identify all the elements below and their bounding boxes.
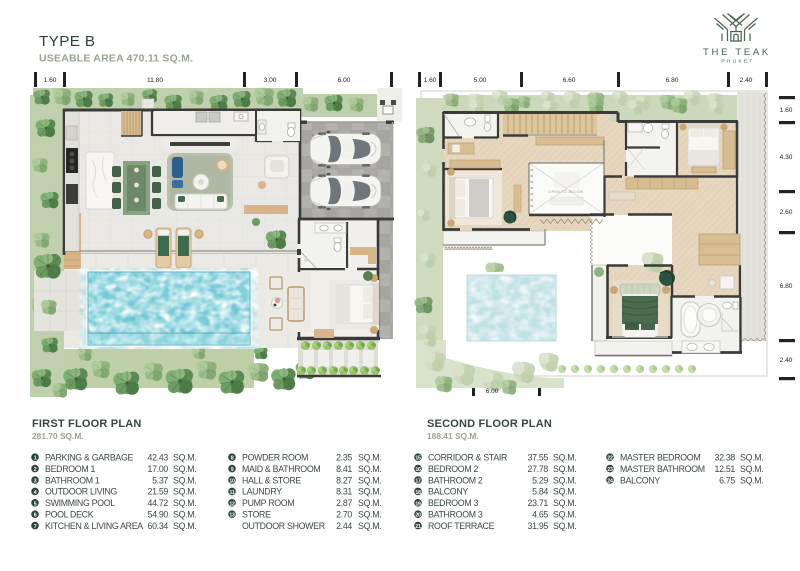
svg-text:SQ.M.: SQ.M.: [173, 521, 196, 531]
svg-text:2.40: 2.40: [740, 77, 753, 84]
svg-text:10: 10: [229, 479, 235, 485]
svg-text:SQ.M.: SQ.M.: [553, 510, 576, 520]
svg-text:BATHROOM 3: BATHROOM 3: [428, 510, 483, 520]
svg-text:42.43: 42.43: [147, 453, 168, 463]
svg-text:15: 15: [415, 456, 421, 462]
svg-text:21: 21: [415, 524, 421, 530]
svg-text:SQ.M.: SQ.M.: [358, 487, 381, 497]
svg-text:8.31: 8.31: [336, 487, 352, 497]
svg-text:13: 13: [229, 513, 235, 519]
svg-text:6.00: 6.00: [486, 388, 499, 395]
svg-text:SQ.M.: SQ.M.: [358, 464, 381, 474]
svg-text:SQ.M.: SQ.M.: [358, 510, 381, 520]
svg-text:MASTER BEDROOM: MASTER BEDROOM: [620, 453, 700, 463]
svg-text:24: 24: [607, 479, 613, 485]
svg-text:2.70: 2.70: [336, 510, 352, 520]
svg-text:THE TEAK: THE TEAK: [703, 47, 771, 58]
svg-text:5.84: 5.84: [532, 487, 548, 497]
svg-text:23: 23: [607, 467, 613, 473]
svg-text:4.65: 4.65: [532, 510, 548, 520]
svg-text:PHUKET: PHUKET: [721, 59, 754, 65]
svg-text:SQ.M.: SQ.M.: [553, 453, 576, 463]
svg-text:6.60: 6.60: [563, 77, 576, 84]
svg-text:2.35: 2.35: [336, 453, 352, 463]
svg-text:TYPE B: TYPE B: [39, 33, 95, 50]
svg-text:19: 19: [415, 501, 421, 507]
svg-text:SQ.M.: SQ.M.: [553, 464, 576, 474]
svg-text:SQ.M.: SQ.M.: [553, 521, 576, 531]
svg-text:281.70 SQ.M.: 281.70 SQ.M.: [32, 431, 84, 441]
svg-text:4: 4: [34, 490, 37, 496]
svg-text:KITCHEN & LIVING AREA: KITCHEN & LIVING AREA: [45, 521, 143, 531]
svg-text:12.51: 12.51: [714, 464, 735, 474]
svg-text:SQ.M.: SQ.M.: [740, 453, 763, 463]
svg-text:SQ.M.: SQ.M.: [358, 475, 381, 485]
svg-text:SQ.M.: SQ.M.: [173, 464, 196, 474]
svg-text:USEABLE AREA 470.11 SQ.M.: USEABLE AREA 470.11 SQ.M.: [39, 53, 193, 65]
svg-text:BEDROOM 1: BEDROOM 1: [45, 464, 95, 474]
svg-text:OUTDOOR SHOWER: OUTDOOR SHOWER: [242, 521, 325, 531]
svg-text:2.60: 2.60: [780, 209, 793, 216]
svg-text:6.75: 6.75: [719, 475, 735, 485]
svg-text:MAID & BATHROOM: MAID & BATHROOM: [242, 464, 320, 474]
svg-text:OPEN TO BELOW: OPEN TO BELOW: [548, 190, 583, 194]
svg-text:5.37: 5.37: [152, 475, 168, 485]
svg-text:20: 20: [415, 513, 421, 519]
svg-text:22: 22: [607, 456, 613, 462]
svg-text:54.90: 54.90: [147, 510, 168, 520]
svg-text:SQ.M.: SQ.M.: [553, 487, 576, 497]
svg-text:2.87: 2.87: [336, 498, 352, 508]
svg-text:3.00: 3.00: [264, 77, 277, 84]
svg-text:SQ.M.: SQ.M.: [740, 475, 763, 485]
svg-text:2.44: 2.44: [336, 521, 352, 531]
svg-text:SQ.M.: SQ.M.: [358, 453, 381, 463]
svg-text:MASTER BATHROOM: MASTER BATHROOM: [620, 464, 705, 474]
svg-text:BEDROOM 3: BEDROOM 3: [428, 498, 478, 508]
svg-text:SECOND FLOOR PLAN: SECOND FLOOR PLAN: [427, 418, 552, 430]
svg-text:7: 7: [34, 524, 37, 530]
svg-text:SQ.M.: SQ.M.: [173, 510, 196, 520]
svg-text:5.29: 5.29: [532, 475, 548, 485]
svg-text:SQ.M.: SQ.M.: [173, 453, 196, 463]
svg-text:BATHROOM 1: BATHROOM 1: [45, 475, 100, 485]
svg-text:BEDROOM 2: BEDROOM 2: [428, 464, 478, 474]
svg-text:FIRST FLOOR PLAN: FIRST FLOOR PLAN: [32, 418, 142, 430]
svg-text:PUMP ROOM: PUMP ROOM: [242, 498, 294, 508]
svg-text:5.00: 5.00: [474, 77, 487, 84]
svg-text:SQ.M.: SQ.M.: [358, 498, 381, 508]
svg-text:21.59: 21.59: [147, 487, 168, 497]
svg-text:6.80: 6.80: [780, 283, 793, 290]
svg-text:PARKING & GARBAGE: PARKING & GARBAGE: [45, 453, 134, 463]
svg-text:16: 16: [415, 467, 421, 473]
svg-text:11.80: 11.80: [147, 77, 163, 84]
svg-text:BALCONY: BALCONY: [428, 487, 468, 497]
svg-text:11: 11: [230, 490, 235, 496]
svg-text:1: 1: [34, 456, 37, 462]
svg-text:18: 18: [415, 490, 421, 496]
svg-text:SQ.M.: SQ.M.: [740, 464, 763, 474]
svg-text:17.00: 17.00: [147, 464, 168, 474]
svg-text:5: 5: [34, 501, 37, 507]
svg-text:SQ.M.: SQ.M.: [553, 475, 576, 485]
svg-text:27.78: 27.78: [527, 464, 548, 474]
svg-text:SQ.M.: SQ.M.: [173, 498, 196, 508]
svg-text:STORE: STORE: [242, 510, 271, 520]
svg-text:31.95: 31.95: [527, 521, 548, 531]
svg-text:60.34: 60.34: [147, 521, 168, 531]
svg-text:188.41 SQ.M.: 188.41 SQ.M.: [427, 431, 479, 441]
svg-text:ROOF TERRACE: ROOF TERRACE: [428, 521, 495, 531]
svg-text:CORRIDOR & STAIR: CORRIDOR & STAIR: [428, 453, 507, 463]
svg-text:POOL DECK: POOL DECK: [45, 510, 94, 520]
svg-text:8.27: 8.27: [336, 475, 352, 485]
svg-text:OUTDOOR LIVING: OUTDOOR LIVING: [45, 487, 118, 497]
svg-text:6: 6: [34, 513, 37, 519]
svg-text:2: 2: [34, 467, 37, 473]
svg-text:6.80: 6.80: [666, 77, 679, 84]
svg-text:1.60: 1.60: [424, 77, 437, 84]
svg-text:6.00: 6.00: [338, 77, 351, 84]
svg-text:POWDER ROOM: POWDER ROOM: [242, 453, 308, 463]
svg-text:37.55: 37.55: [527, 453, 548, 463]
svg-text:BATHROOM 2: BATHROOM 2: [428, 475, 483, 485]
svg-text:9: 9: [231, 467, 234, 473]
svg-text:BALCONY: BALCONY: [620, 475, 660, 485]
svg-text:8.41: 8.41: [336, 464, 352, 474]
svg-text:8: 8: [231, 456, 234, 462]
svg-text:2.40: 2.40: [780, 357, 793, 364]
svg-text:SQ.M.: SQ.M.: [173, 487, 196, 497]
svg-text:17: 17: [415, 479, 421, 485]
svg-text:HALL & STORE: HALL & STORE: [242, 475, 301, 485]
svg-text:4.30: 4.30: [780, 154, 793, 161]
svg-text:23.71: 23.71: [527, 498, 548, 508]
svg-text:44.72: 44.72: [147, 498, 168, 508]
svg-text:1.60: 1.60: [44, 77, 57, 84]
svg-text:3: 3: [34, 479, 37, 485]
svg-text:12: 12: [229, 501, 235, 507]
svg-text:SQ.M.: SQ.M.: [553, 498, 576, 508]
svg-text:SQ.M.: SQ.M.: [173, 475, 196, 485]
svg-text:1.60: 1.60: [780, 107, 793, 114]
svg-text:SWIMMING POOL: SWIMMING POOL: [45, 498, 115, 508]
svg-text:LAUNDRY: LAUNDRY: [242, 487, 282, 497]
svg-text:SQ.M.: SQ.M.: [358, 521, 381, 531]
svg-text:32.38: 32.38: [714, 453, 735, 463]
